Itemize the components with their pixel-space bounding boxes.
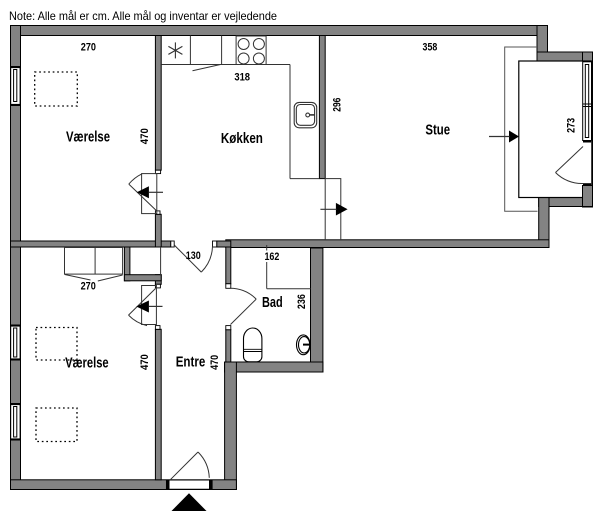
svg-text:358: 358 <box>423 41 438 53</box>
svg-text:Stue: Stue <box>425 123 450 139</box>
svg-text:130: 130 <box>186 250 201 262</box>
svg-text:270: 270 <box>81 41 96 53</box>
svg-text:Entre: Entre <box>176 354 206 370</box>
svg-text:273: 273 <box>566 118 578 133</box>
svg-text:470: 470 <box>139 354 151 370</box>
svg-text:Note: Alle mål er cm. Alle mål: Note: Alle mål er cm. Alle mål og invent… <box>9 9 277 23</box>
svg-text:470: 470 <box>209 355 221 370</box>
svg-text:Bad: Bad <box>262 295 283 311</box>
svg-text:470: 470 <box>139 128 151 144</box>
svg-text:236: 236 <box>296 294 308 309</box>
svg-text:270: 270 <box>81 281 96 293</box>
svg-text:296: 296 <box>331 98 343 112</box>
svg-text:Værelse: Værelse <box>66 130 110 146</box>
svg-text:318: 318 <box>234 71 250 83</box>
svg-text:162: 162 <box>264 251 279 263</box>
svg-text:Køkken: Køkken <box>221 131 263 147</box>
svg-text:Værelse: Værelse <box>65 355 109 371</box>
